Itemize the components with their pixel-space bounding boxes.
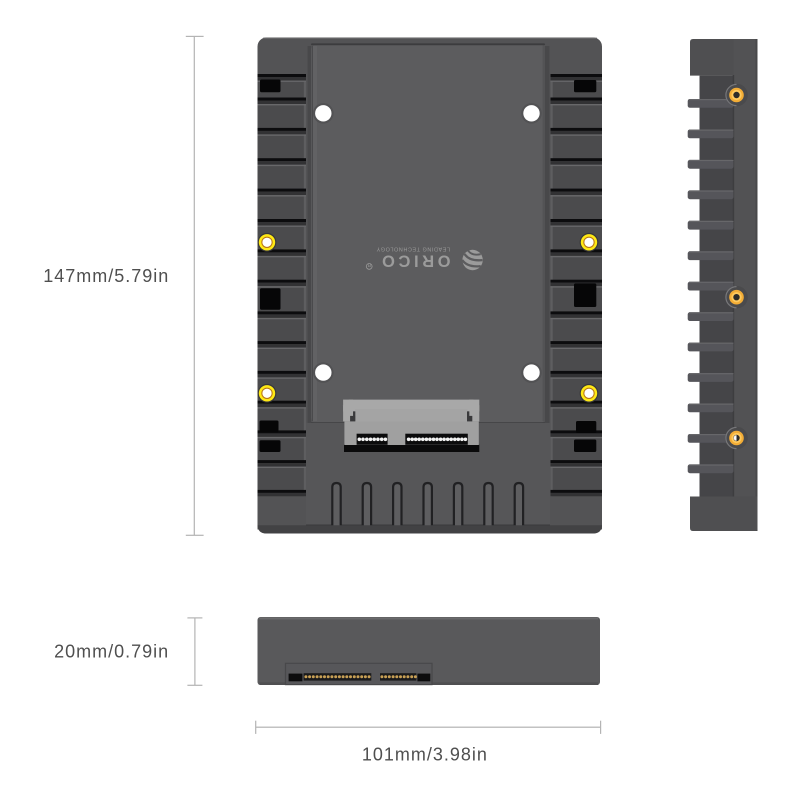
svg-text:101mm/3.98in: 101mm/3.98in <box>362 745 488 765</box>
svg-text:LEADING TECHNOLOGY: LEADING TECHNOLOGY <box>376 245 450 251</box>
svg-text:20mm/0.79in: 20mm/0.79in <box>54 641 169 661</box>
svg-text:ORICO: ORICO <box>378 251 450 269</box>
svg-text:147mm/5.79in: 147mm/5.79in <box>43 266 169 286</box>
